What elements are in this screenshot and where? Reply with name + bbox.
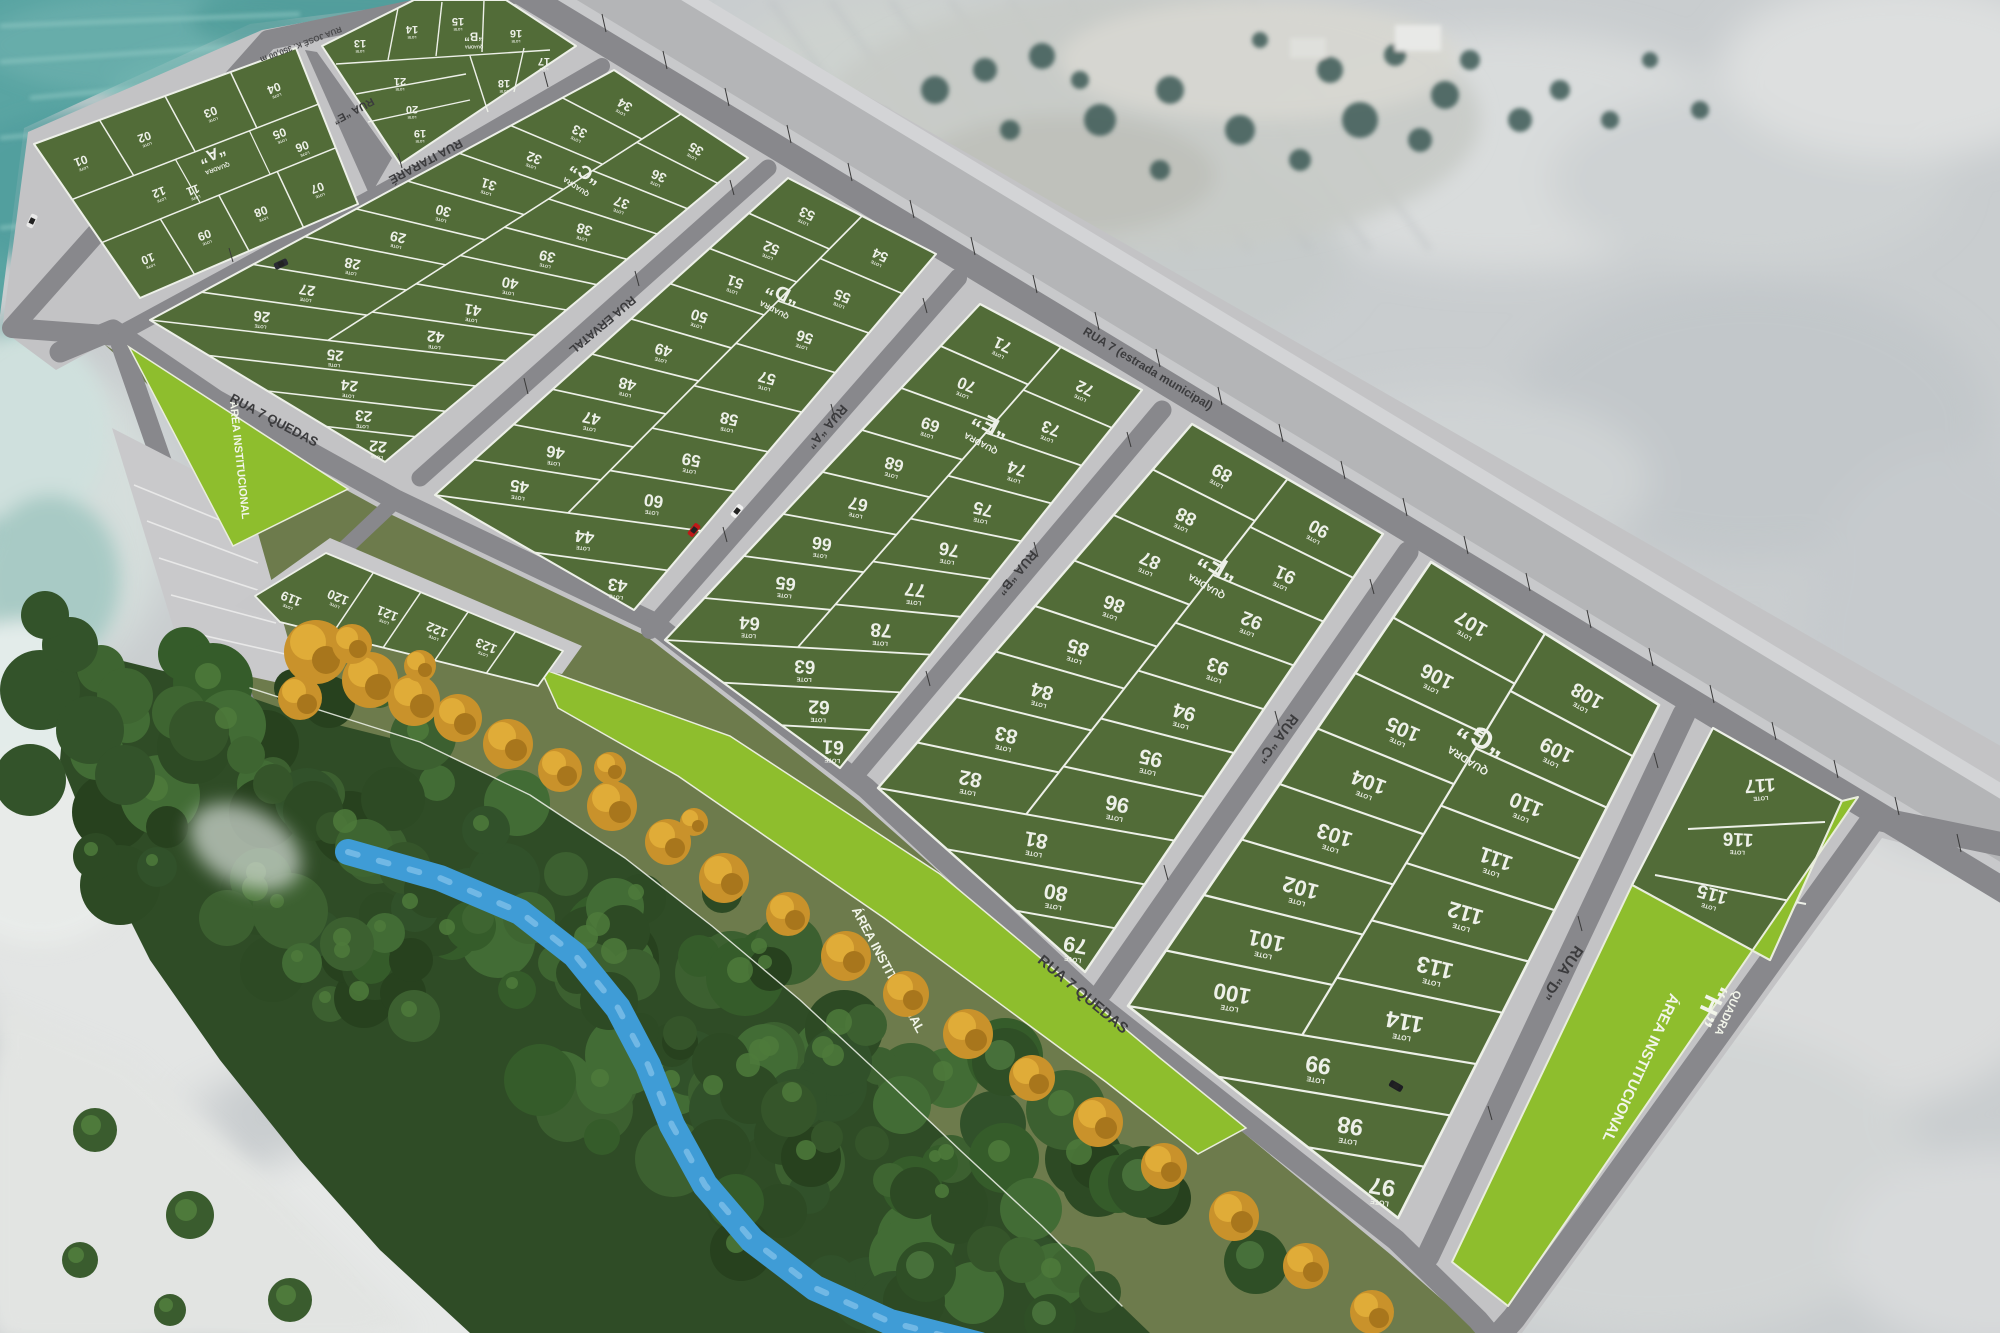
svg-text:25: 25	[326, 345, 345, 364]
svg-text:13: 13	[354, 37, 366, 49]
svg-text:22: 22	[368, 436, 388, 455]
svg-text:14: 14	[405, 23, 418, 35]
svg-text:LOTE: LOTE	[741, 631, 757, 638]
svg-text:“B”: “B”	[464, 30, 484, 42]
svg-text:20: 20	[406, 103, 418, 115]
svg-text:16: 16	[510, 27, 522, 39]
svg-text:27: 27	[298, 280, 316, 298]
svg-text:64: 64	[738, 612, 761, 635]
svg-text:21: 21	[394, 75, 406, 87]
svg-text:78: 78	[869, 618, 892, 642]
svg-text:41: 41	[463, 300, 483, 320]
svg-text:42: 42	[426, 326, 446, 345]
svg-text:LOTE: LOTE	[810, 716, 826, 723]
svg-text:LOTE: LOTE	[1729, 848, 1745, 855]
svg-text:LOTE: LOTE	[872, 639, 888, 646]
svg-text:28: 28	[343, 254, 362, 273]
svg-text:LOTE: LOTE	[499, 89, 509, 93]
svg-text:QUADRA: QUADRA	[465, 45, 483, 50]
svg-text:LOTE: LOTE	[415, 139, 425, 143]
svg-text:LOTE: LOTE	[355, 49, 365, 53]
svg-text:77: 77	[904, 577, 927, 600]
svg-text:40: 40	[501, 273, 520, 292]
svg-text:LOTE: LOTE	[539, 67, 549, 71]
svg-text:LOTE: LOTE	[796, 675, 812, 682]
svg-text:15: 15	[452, 15, 464, 27]
svg-text:LOTE: LOTE	[407, 35, 417, 39]
svg-text:24: 24	[340, 376, 359, 395]
svg-text:26: 26	[253, 307, 271, 325]
svg-text:LOTE: LOTE	[1753, 794, 1769, 801]
svg-text:18: 18	[498, 77, 510, 89]
svg-text:116: 116	[1722, 827, 1754, 850]
svg-text:LOTE: LOTE	[453, 27, 463, 31]
svg-text:LOTE: LOTE	[395, 87, 405, 91]
svg-text:LOTE: LOTE	[824, 756, 840, 763]
svg-text:62: 62	[808, 695, 831, 717]
svg-text:63: 63	[794, 655, 816, 677]
svg-text:61: 61	[821, 735, 844, 758]
svg-text:LOTE: LOTE	[511, 39, 521, 43]
svg-text:LOTE: LOTE	[407, 115, 417, 119]
svg-text:17: 17	[538, 55, 550, 67]
svg-text:97: 97	[1367, 1171, 1397, 1201]
svg-text:19: 19	[414, 127, 426, 139]
svg-text:117: 117	[1744, 773, 1776, 796]
svg-text:23: 23	[354, 406, 373, 425]
